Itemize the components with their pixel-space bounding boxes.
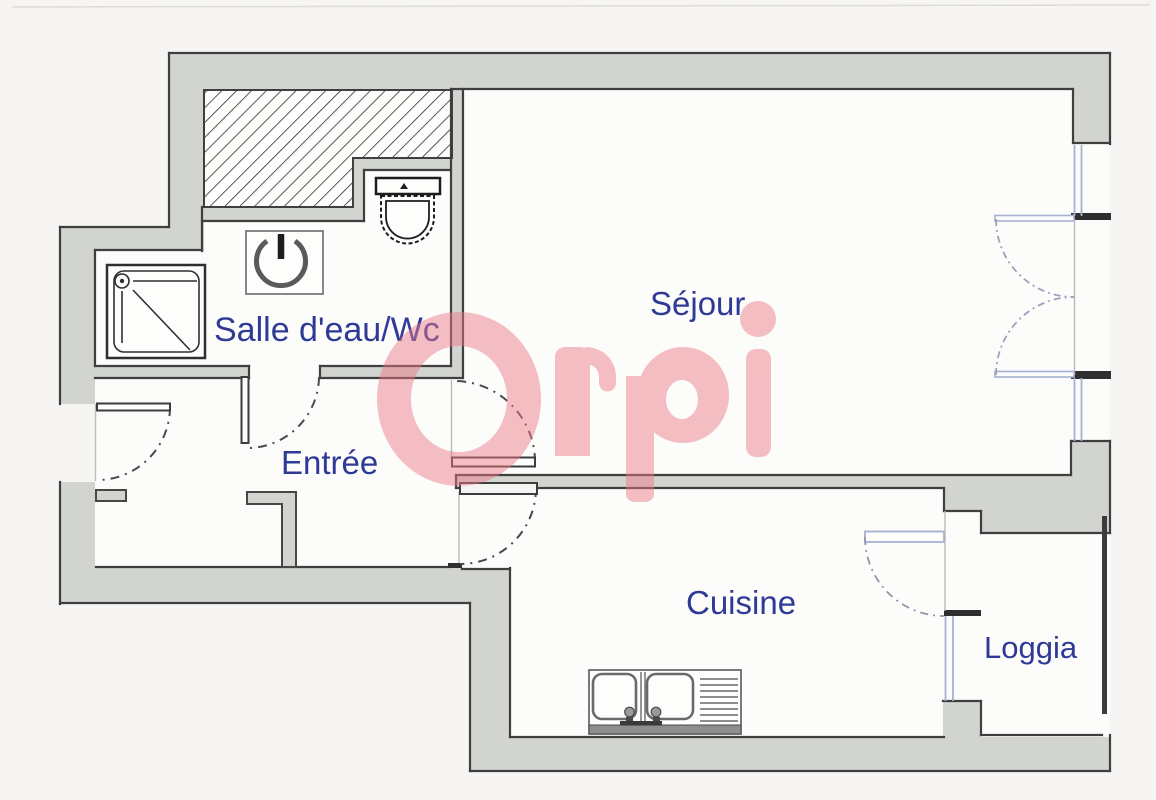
svg-text:Loggia: Loggia [984,630,1078,665]
svg-text:Entrée: Entrée [281,444,378,481]
svg-text:Séjour: Séjour [650,285,745,322]
svg-text:Cuisine: Cuisine [686,584,796,621]
